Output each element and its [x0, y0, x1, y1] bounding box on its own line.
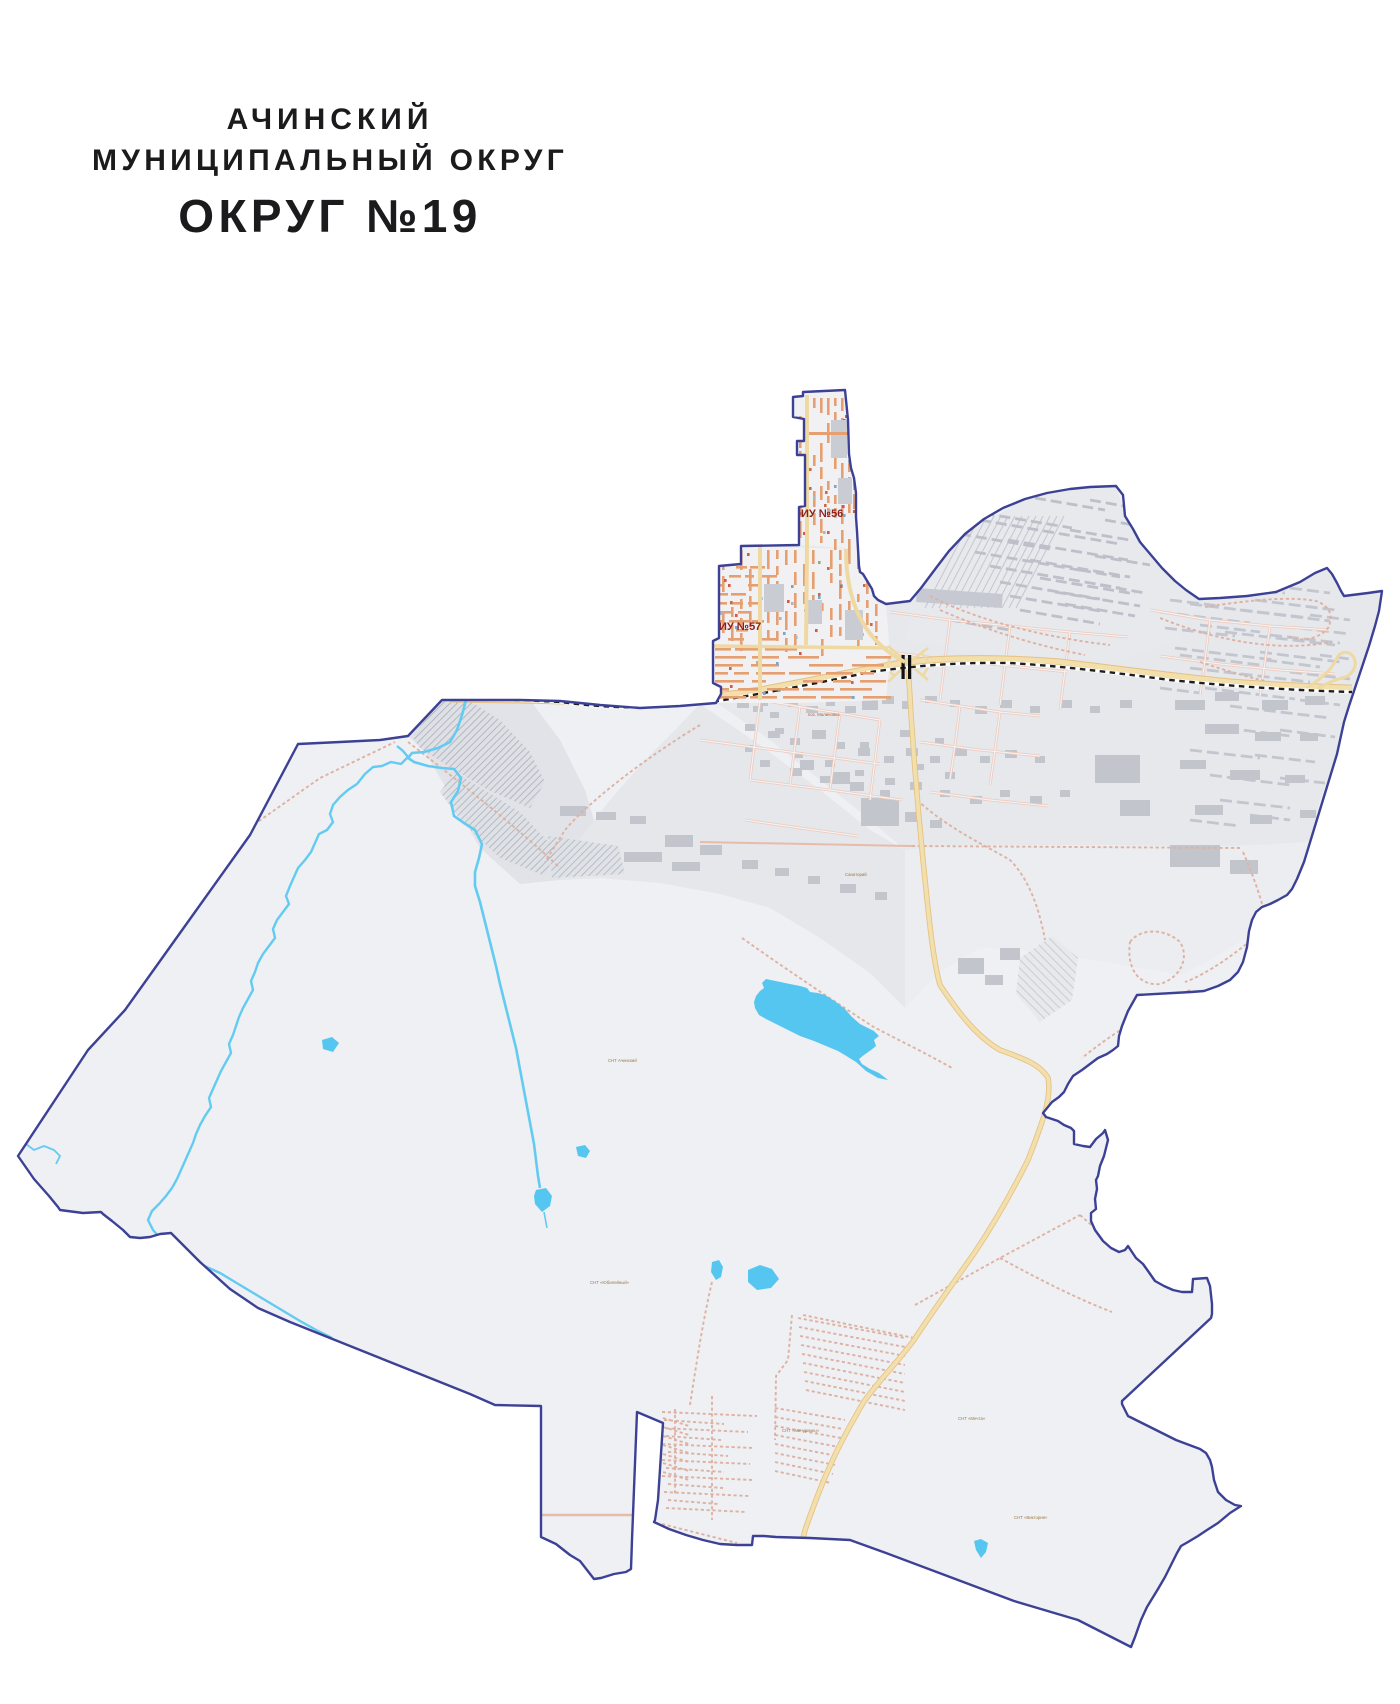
svg-text:ИУ №57: ИУ №57	[719, 621, 761, 633]
svg-text:СНТ «Виктория»: СНТ «Виктория»	[1014, 1515, 1048, 1520]
svg-text:СНТ Ачинский: СНТ Ачинский	[608, 1058, 637, 1063]
svg-text:СНТ «Мечта»: СНТ «Мечта»	[958, 1416, 986, 1421]
svg-text:Санаторий: Санаторий	[845, 872, 867, 877]
svg-text:СНТ «Юбилейный»: СНТ «Юбилейный»	[590, 1280, 630, 1285]
svg-text:СНТ «Мичуринец»: СНТ «Мичуринец»	[782, 1428, 820, 1433]
svg-text:пос. Малиновка: пос. Малиновка	[808, 712, 840, 717]
svg-text:ИУ №56: ИУ №56	[801, 508, 843, 520]
